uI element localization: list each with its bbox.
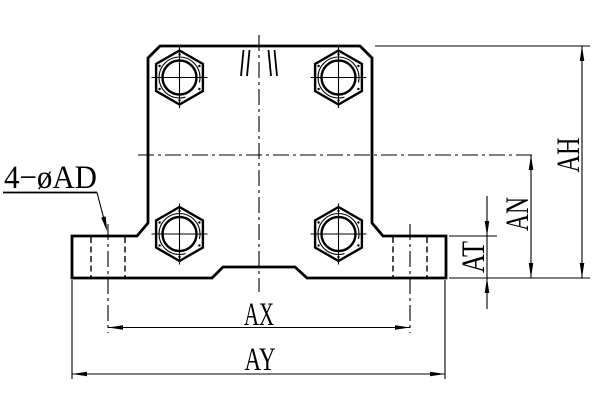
dimension-ay: AY [72,342,445,378]
dimension-at: AT [456,196,492,309]
dim-an-label: AN [500,197,536,231]
leader-arrowhead-icon [101,216,107,231]
technical-drawing: AH AN AT AX AY 4−øAD [0,0,600,418]
arrowhead-down-icon [580,263,585,278]
arrowhead-up-icon [485,278,490,293]
dim-ax-label: AX [244,297,274,333]
arrowhead-up-icon [529,155,534,170]
part-outline [72,46,446,278]
slit-line [269,50,272,76]
slit-line [247,50,250,76]
hex-socket-hole-top-right [311,47,367,108]
drawing-canvas: AH AN AT AX AY 4−øAD [0,0,600,418]
arrowhead-right-icon [395,325,410,330]
hex-socket-hole-bottom-right [311,204,367,265]
slit-line [275,50,278,76]
arrowhead-up-icon [580,46,585,61]
dimension-ax: AX [108,297,410,333]
hole-callout-label: 4−øAD [4,160,97,196]
arrowhead-right-icon [430,372,445,377]
arrowhead-down-icon [529,263,534,278]
arrowhead-down-icon [485,221,490,236]
hole-callout: 4−øAD [3,160,107,232]
arrowhead-left-icon [72,372,87,377]
arrowhead-left-icon [108,325,123,330]
hex-socket-hole-bottom-left [152,204,208,265]
dimension-an: AN [500,155,536,278]
slit-line [241,50,244,76]
dim-at-label: AT [456,241,492,273]
dim-ah-label: AH [551,138,587,173]
hex-socket-hole-top-left [152,47,208,108]
dim-ay-label: AY [245,342,276,378]
dimension-ah: AH [551,46,587,278]
